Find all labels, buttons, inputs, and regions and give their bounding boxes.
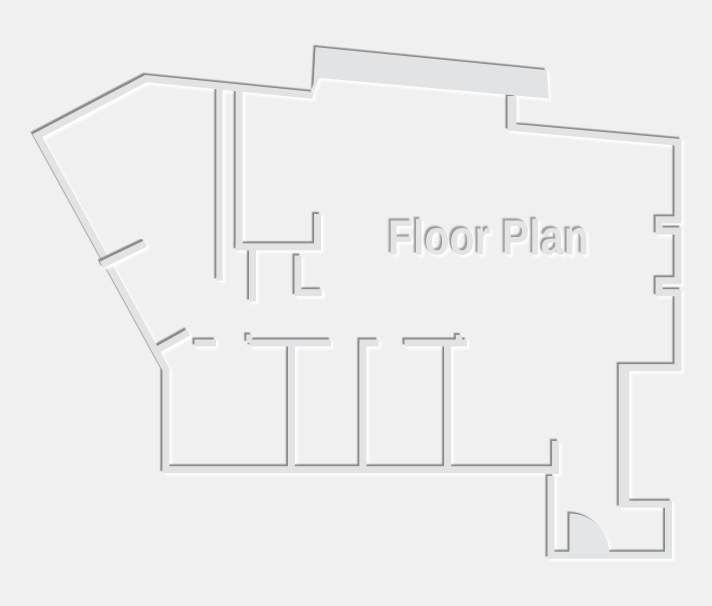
svg-text:Floor Plan: Floor Plan (388, 210, 589, 265)
